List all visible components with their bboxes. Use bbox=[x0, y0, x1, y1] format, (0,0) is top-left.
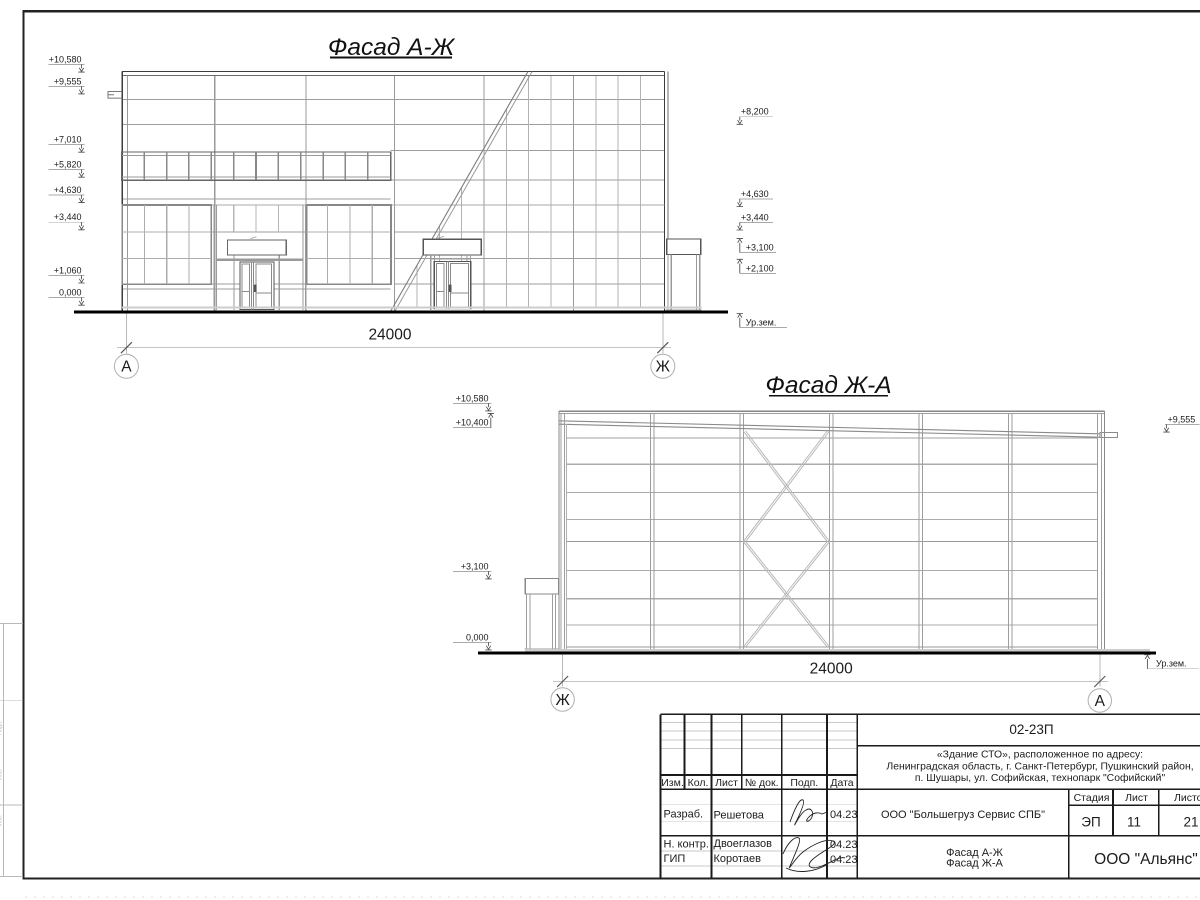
svg-text:ГИП: ГИП bbox=[664, 853, 686, 865]
svg-text:+2,100: +2,100 bbox=[746, 263, 774, 273]
svg-text:02-23П: 02-23П bbox=[1009, 722, 1053, 737]
svg-text:Н. контр.: Н. контр. bbox=[664, 839, 709, 851]
svg-text:А: А bbox=[121, 359, 132, 376]
svg-text:Двоеглазов: Двоеглазов bbox=[714, 838, 773, 850]
svg-text:Разраб.: Разраб. bbox=[664, 809, 704, 821]
svg-text:Дата: Дата bbox=[830, 777, 853, 789]
svg-text:ООО "Альянс": ООО "Альянс" bbox=[1094, 851, 1198, 868]
svg-text:Стадия: Стадия bbox=[1074, 792, 1110, 804]
svg-text:+3,100: +3,100 bbox=[461, 561, 489, 571]
svg-text:24000: 24000 bbox=[810, 661, 853, 678]
svg-text:Решетова: Решетова bbox=[714, 810, 765, 822]
svg-text:Ленинградская область, г. Санк: Ленинградская область, г. Санкт-Петербур… bbox=[886, 760, 1193, 772]
svg-text:Ж: Ж bbox=[656, 359, 671, 376]
svg-text:Кол.: Кол. bbox=[688, 777, 709, 789]
svg-text:Подп.: Подп. bbox=[790, 777, 818, 789]
svg-text:11: 11 bbox=[1127, 815, 1141, 830]
svg-text:+7,010: +7,010 bbox=[54, 135, 82, 145]
svg-text:Лист: Лист bbox=[1125, 792, 1148, 804]
svg-text:Изм.: Изм. bbox=[661, 777, 684, 789]
svg-text:04.23: 04.23 bbox=[830, 839, 858, 851]
svg-text:+1,060: +1,060 bbox=[54, 265, 82, 275]
svg-text:+10,400: +10,400 bbox=[456, 417, 489, 427]
svg-text:+10,580: +10,580 bbox=[456, 393, 489, 403]
svg-text:+3,100: +3,100 bbox=[746, 243, 774, 253]
svg-text:ООО "Большегруз Сервис СПБ": ООО "Большегруз Сервис СПБ" bbox=[881, 809, 1045, 821]
svg-text:Ур.зем.: Ур.зем. bbox=[746, 318, 777, 328]
svg-text:Инв.: Инв. bbox=[0, 814, 4, 826]
svg-text:Фасад Ж-А: Фасад Ж-А bbox=[765, 372, 891, 399]
svg-text:Ж: Ж bbox=[555, 692, 570, 709]
svg-text:+5,820: +5,820 bbox=[54, 160, 82, 170]
svg-text:Коротаев: Коротаев bbox=[714, 853, 762, 865]
svg-text:+3,440: +3,440 bbox=[741, 212, 769, 222]
svg-text:№ док.: № док. bbox=[745, 777, 779, 789]
svg-text:+9,555: +9,555 bbox=[54, 76, 82, 86]
svg-text:+4,630: +4,630 bbox=[54, 185, 82, 195]
svg-text:+4,630: +4,630 bbox=[741, 189, 769, 199]
svg-text:А: А bbox=[1095, 693, 1106, 710]
svg-text:Подп.: Подп. bbox=[0, 720, 4, 735]
svg-text:Ур.зем.: Ур.зем. bbox=[1156, 659, 1187, 669]
svg-text:21: 21 bbox=[1183, 815, 1198, 830]
svg-text:ЭП: ЭП bbox=[1081, 815, 1100, 830]
svg-text:Инв.: Инв. bbox=[0, 768, 4, 780]
svg-text:+10,580: +10,580 bbox=[49, 55, 82, 65]
svg-text:24000: 24000 bbox=[368, 327, 411, 344]
svg-text:«Здание СТО», расположенное по: «Здание СТО», расположенное по адресу: bbox=[937, 750, 1143, 761]
svg-text:Фасад Ж-А: Фасад Ж-А bbox=[946, 858, 1003, 870]
svg-text:0,000: 0,000 bbox=[59, 288, 82, 298]
svg-text:+3,440: +3,440 bbox=[54, 212, 82, 222]
svg-text:п. Шушары, ул. Софийская, техн: п. Шушары, ул. Софийская, технопарк "Соф… bbox=[915, 772, 1166, 784]
svg-text:+9,555: +9,555 bbox=[1168, 414, 1196, 424]
svg-text:+8,200: +8,200 bbox=[741, 107, 769, 117]
svg-text:Лист: Лист bbox=[715, 777, 738, 789]
svg-text:0,000: 0,000 bbox=[466, 632, 489, 642]
svg-text:Листов: Листов bbox=[1174, 792, 1200, 804]
svg-text:04.23: 04.23 bbox=[830, 809, 858, 821]
